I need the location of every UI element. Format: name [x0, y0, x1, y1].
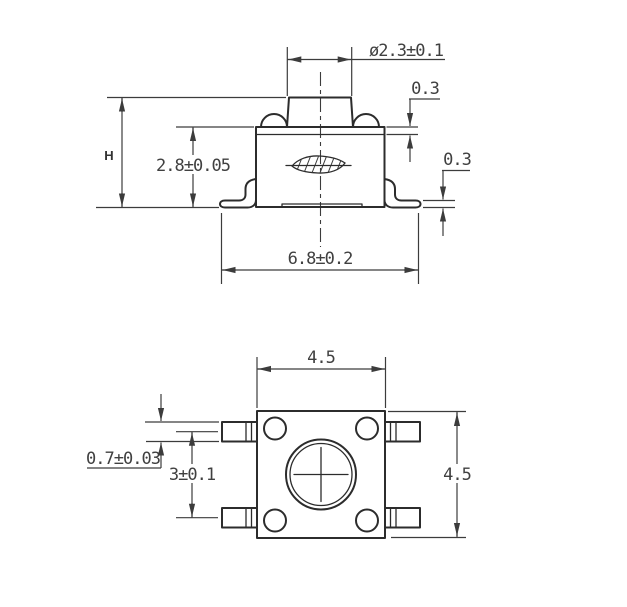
lead-top-left — [222, 422, 257, 442]
actuator-cross — [294, 448, 348, 502]
left-dome-bump — [261, 114, 287, 127]
dim-overall-width-label: 6.8±0.2 — [288, 249, 353, 269]
dim-body-depth-label: 4.5 — [443, 465, 471, 485]
lead-bottom-left — [222, 508, 257, 528]
dim-lead-pitch: 3±0.1 — [167, 432, 218, 518]
hatched-center-marking — [286, 150, 353, 178]
left-gullwing-terminal — [220, 179, 256, 208]
drawing-canvas: ø2.3±0.1 0.3 0.3 H 2. — [0, 0, 627, 607]
right-gullwing-terminal — [385, 179, 421, 208]
dim-body-depth: 4.5 — [388, 412, 473, 538]
dim-body-width: 4.5 — [257, 348, 386, 408]
right-dome-bump — [353, 114, 379, 127]
dim-body-height-label: 2.8±0.05 — [156, 156, 230, 176]
dim-lead-pitch-label: 3±0.1 — [169, 465, 216, 485]
dim-body-height: 2.8±0.05 — [156, 127, 254, 208]
dim-cover-thickness-label: 0.3 — [411, 79, 439, 99]
lead-top-right — [385, 422, 420, 442]
corner-contact-top-right — [356, 418, 378, 440]
dim-lead-width-label: 0.7±0.03 — [86, 449, 160, 469]
dim-overall-height-label: H — [104, 148, 113, 163]
side-view: ø2.3±0.1 0.3 0.3 H 2. — [96, 41, 471, 284]
lead-bottom-right — [385, 508, 420, 528]
center-actuator — [286, 440, 356, 510]
corner-contact-top-left — [264, 418, 286, 440]
top-view: 4.5 4.5 3±0.1 0.7±0.03 — [86, 348, 473, 538]
dim-overall-height: H — [96, 98, 286, 208]
corner-contact-bottom-right — [356, 510, 378, 532]
dim-terminal-thickness-label: 0.3 — [443, 150, 471, 170]
dim-body-width-label: 4.5 — [307, 348, 335, 368]
dim-plunger-diameter-label: ø2.3±0.1 — [369, 41, 444, 61]
corner-contact-bottom-left — [264, 510, 286, 532]
dim-terminal-thickness: 0.3 — [423, 150, 471, 236]
tact-switch-drawing: ø2.3±0.1 0.3 0.3 H 2. — [0, 0, 627, 607]
dim-cover-thickness: 0.3 — [387, 79, 441, 162]
